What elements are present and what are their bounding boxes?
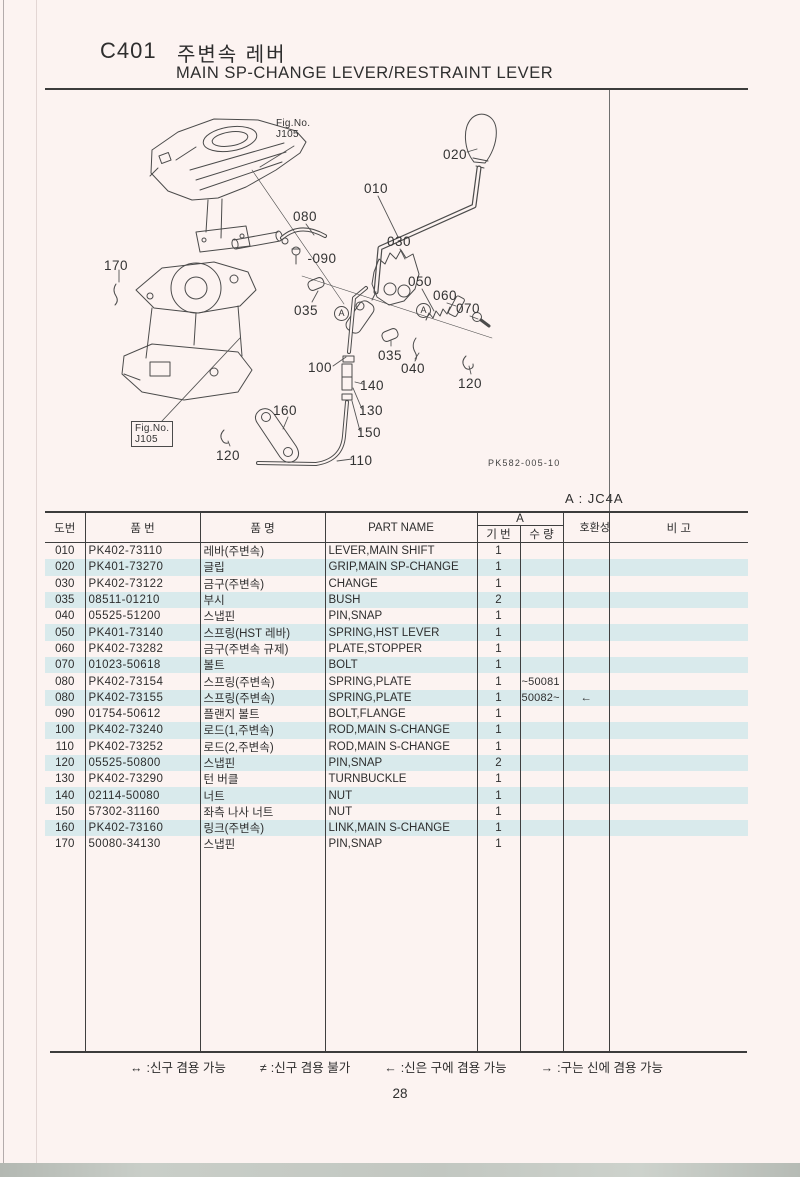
filler-cell: [609, 853, 748, 1051]
cell-part-no: 02114-50080: [85, 787, 200, 803]
header-quantity: 수 량: [520, 526, 563, 543]
cell-name-ko: 스프링(주변속): [200, 690, 325, 706]
cell-compat: [563, 673, 609, 689]
cell-no: 170: [45, 836, 85, 852]
cell-qty: 1: [477, 576, 520, 592]
cell-part-no: PK402-73290: [85, 771, 200, 787]
cell-part-name: PIN,SNAP: [325, 608, 477, 624]
callout-050: 050: [408, 274, 432, 289]
legend-item: ↔:신구 겸용 가능: [130, 1057, 226, 1076]
cell-no: 060: [45, 641, 85, 657]
cell-compat: [563, 787, 609, 803]
cell-part-name: LEVER,MAIN SHIFT: [325, 543, 477, 560]
cell-qty: 1: [477, 673, 520, 689]
cell-name-ko: 스프링(HST 레바): [200, 624, 325, 640]
cell-qty: 1: [477, 706, 520, 722]
cell-remarks: [609, 755, 748, 771]
cell-part-name: LINK,MAIN S-CHANGE: [325, 820, 477, 836]
fig-reference-bottom: Fig.No. J105: [131, 421, 173, 447]
legend-text: :신구 겸용 가능: [146, 1061, 225, 1075]
callout-120: 120: [458, 376, 482, 391]
callout-020: 020: [443, 147, 467, 162]
filler-cell: [563, 853, 609, 1051]
cell-no: 050: [45, 624, 85, 640]
cell-compat: [563, 592, 609, 608]
legend-symbol: ←: [384, 1061, 397, 1075]
table-filler-row: [45, 853, 748, 1051]
page-number: 28: [0, 1086, 800, 1101]
cell-no: 010: [45, 543, 85, 560]
header-name-korean: 품 명: [200, 512, 325, 543]
cell-part-name: BOLT,FLANGE: [325, 706, 477, 722]
cell-part-no: PK402-73155: [85, 690, 200, 706]
cell-serial: [520, 559, 563, 575]
cell-qty: 1: [477, 787, 520, 803]
cell-compat: [563, 641, 609, 657]
header-serial-no: 기 번: [477, 526, 520, 543]
cell-name-ko: 스냅핀: [200, 755, 325, 771]
cell-no: 030: [45, 576, 85, 592]
cell-part-no: PK402-73252: [85, 739, 200, 755]
table-row: 060PK402-73282금구(주변속 규제)PLATE,STOPPER1: [45, 641, 748, 657]
cell-no: 080: [45, 673, 85, 689]
cell-name-ko: 금구(주변속): [200, 576, 325, 592]
fig-ref-bottom-line1: Fig.No.: [135, 423, 169, 434]
cell-no: 150: [45, 804, 85, 820]
cell-compat: [563, 836, 609, 852]
cell-part-name: GRIP,MAIN SP-CHANGE: [325, 559, 477, 575]
table-row: 160PK402-73160링크(주변속)LINK,MAIN S-CHANGE1: [45, 820, 748, 836]
callout-110: 110: [349, 453, 372, 468]
cell-part-no: 08511-01210: [85, 592, 200, 608]
cell-compat: [563, 608, 609, 624]
cell-no: 100: [45, 722, 85, 738]
cell-qty: 2: [477, 755, 520, 771]
callout-100: 100: [308, 360, 332, 375]
cell-compat: [563, 739, 609, 755]
cell-qty: 2: [477, 592, 520, 608]
drawing-code: PK582-005-10: [488, 458, 560, 468]
page-title-korean: 주변속 레버: [177, 38, 287, 67]
cell-no: 160: [45, 820, 85, 836]
filler-cell: [477, 853, 520, 1051]
table-row: 03508511-01210부시BUSH2: [45, 592, 748, 608]
callout-010: 010: [364, 181, 388, 196]
cell-remarks: [609, 820, 748, 836]
cell-serial: [520, 624, 563, 640]
cell-serial: [520, 771, 563, 787]
cell-serial: [520, 576, 563, 592]
cell-serial: [520, 706, 563, 722]
cell-part-name: BUSH: [325, 592, 477, 608]
cell-name-ko: 로드(1,주변속): [200, 722, 325, 738]
cell-remarks: [609, 543, 748, 560]
cell-remarks: [609, 641, 748, 657]
table-row: 04005525-51200스냅핀PIN,SNAP1: [45, 608, 748, 624]
header-group-a: A: [477, 512, 563, 526]
cell-no: 090: [45, 706, 85, 722]
cell-part-no: 05525-51200: [85, 608, 200, 624]
cell-serial: [520, 592, 563, 608]
cell-no: 130: [45, 771, 85, 787]
cell-qty: 1: [477, 722, 520, 738]
cell-part-name: NUT: [325, 804, 477, 820]
cell-serial: [520, 657, 563, 673]
legend-symbol: ≠: [260, 1061, 267, 1075]
cell-part-name: SPRING,PLATE: [325, 690, 477, 706]
legend-text: :신은 구에 겸용 가능: [401, 1061, 507, 1075]
header-remarks: 비 고: [609, 512, 748, 543]
cell-qty: 1: [477, 820, 520, 836]
cell-qty: 1: [477, 624, 520, 640]
table-row: 030PK402-73122금구(주변속)CHANGE1: [45, 576, 748, 592]
cell-qty: 1: [477, 739, 520, 755]
cell-remarks: [609, 706, 748, 722]
table-bottom-rule: [50, 1051, 747, 1053]
cell-serial: [520, 722, 563, 738]
callout-080: 080: [293, 209, 317, 224]
cell-remarks: [609, 739, 748, 755]
filler-cell: [85, 853, 200, 1051]
cell-qty: 1: [477, 657, 520, 673]
model-note: A : JC4A: [565, 491, 624, 506]
cell-compat: ←: [563, 690, 609, 706]
cell-serial: [520, 608, 563, 624]
cell-part-no: PK402-73122: [85, 576, 200, 592]
cell-qty: 1: [477, 690, 520, 706]
cell-part-no: PK402-73154: [85, 673, 200, 689]
cell-remarks: [609, 836, 748, 852]
cell-part-no: PK402-73160: [85, 820, 200, 836]
cell-remarks: [609, 559, 748, 575]
cell-remarks: [609, 673, 748, 689]
page-title-english: MAIN SP-CHANGE LEVER/RESTRAINT LEVER: [176, 64, 553, 83]
cell-remarks: [609, 608, 748, 624]
scan-edge-line-inner: [36, 0, 37, 1164]
cell-part-no: 05525-50800: [85, 755, 200, 771]
cell-part-name: PIN,SNAP: [325, 755, 477, 771]
callout-170: 170: [104, 258, 128, 273]
table-row: 130PK402-73290턴 버클TURNBUCKLE1: [45, 771, 748, 787]
cell-part-name: NUT: [325, 787, 477, 803]
callout-150: 150: [357, 425, 381, 440]
cell-compat: [563, 657, 609, 673]
fig-ref-top-line1: Fig.No.: [276, 118, 310, 129]
header-part-name: PART NAME: [325, 512, 477, 543]
legend-text: :신구 겸용 불가: [271, 1061, 350, 1075]
table-row: 020PK401-73270글립GRIP,MAIN SP-CHANGE1: [45, 559, 748, 575]
cell-remarks: [609, 787, 748, 803]
fig-ref-bottom-line2: J105: [135, 434, 169, 445]
cell-name-ko: 스냅핀: [200, 608, 325, 624]
cell-name-ko: 링크(주변속): [200, 820, 325, 836]
cell-part-no: PK402-73110: [85, 543, 200, 560]
cell-no: 120: [45, 755, 85, 771]
callout-160: 160: [273, 403, 297, 418]
cell-name-ko: 좌측 나사 너트: [200, 804, 325, 820]
cell-qty: 1: [477, 771, 520, 787]
callout-040: 040: [401, 361, 425, 376]
cell-name-ko: 금구(주변속 규제): [200, 641, 325, 657]
cell-no: 070: [45, 657, 85, 673]
cell-serial: [520, 787, 563, 803]
cell-name-ko: 부시: [200, 592, 325, 608]
cell-compat: [563, 706, 609, 722]
cell-qty: 1: [477, 641, 520, 657]
section-code: C401: [100, 38, 157, 64]
cell-no: 020: [45, 559, 85, 575]
cell-remarks: [609, 624, 748, 640]
cell-part-name: SPRING,HST LEVER: [325, 624, 477, 640]
table-row: 100PK402-73240로드(1,주변속)ROD,MAIN S-CHANGE…: [45, 722, 748, 738]
cell-qty: 1: [477, 559, 520, 575]
header-fig-no: 도번: [45, 512, 85, 543]
cell-qty: 1: [477, 543, 520, 560]
cell-name-ko: 볼트: [200, 657, 325, 673]
cell-part-no: 50080-34130: [85, 836, 200, 852]
cell-serial: [520, 739, 563, 755]
cell-name-ko: 플랜지 볼트: [200, 706, 325, 722]
cell-serial: [520, 641, 563, 657]
cell-remarks: [609, 592, 748, 608]
table-row: 17050080-34130스냅핀PIN,SNAP1: [45, 836, 748, 852]
cell-part-no: PK402-73240: [85, 722, 200, 738]
cell-compat: [563, 771, 609, 787]
callout-035: 035: [378, 348, 402, 363]
cell-no: 035: [45, 592, 85, 608]
callout-035: 035: [294, 303, 318, 318]
callout-060: 060: [433, 288, 457, 303]
legend-item: →:구는 신에 겸용 가능: [541, 1057, 663, 1076]
cell-part-name: ROD,MAIN S-CHANGE: [325, 739, 477, 755]
legend-text: :구는 신에 겸용 가능: [557, 1061, 663, 1075]
fig-reference-top: Fig.No. J105: [276, 118, 310, 140]
cell-compat: [563, 755, 609, 771]
cell-remarks: [609, 576, 748, 592]
table-row: 080PK402-73154스프링(주변속)SPRING,PLATE1~5008…: [45, 673, 748, 689]
detail-marker-a: A: [334, 306, 349, 321]
title-rule: [45, 88, 748, 90]
header-part-no: 품 번: [85, 512, 200, 543]
cell-compat: [563, 820, 609, 836]
cell-part-no: PK401-73270: [85, 559, 200, 575]
cell-compat: [563, 722, 609, 738]
cell-part-name: BOLT: [325, 657, 477, 673]
cell-part-no: 01754-50612: [85, 706, 200, 722]
filler-cell: [325, 853, 477, 1051]
cell-serial: [520, 836, 563, 852]
header-compatibility: 호환성: [563, 512, 609, 543]
table-row: 110PK402-73252로드(2,주변속)ROD,MAIN S-CHANGE…: [45, 739, 748, 755]
cell-remarks: [609, 722, 748, 738]
cell-part-name: PIN,SNAP: [325, 836, 477, 852]
cell-qty: 1: [477, 836, 520, 852]
detail-marker-a: A: [416, 303, 431, 318]
cell-no: 040: [45, 608, 85, 624]
cell-remarks: [609, 657, 748, 673]
cell-qty: 1: [477, 608, 520, 624]
table-row: 15057302-31160좌측 나사 너트NUT1: [45, 804, 748, 820]
callout-140: 140: [360, 378, 384, 393]
cell-compat: [563, 543, 609, 560]
cell-part-no: PK402-73282: [85, 641, 200, 657]
cell-no: 080: [45, 690, 85, 706]
legend: ↔:신구 겸용 가능≠:신구 겸용 불가←:신은 구에 겸용 가능→:구는 신에…: [45, 1057, 748, 1076]
cell-part-name: TURNBUCKLE: [325, 771, 477, 787]
cell-compat: [563, 804, 609, 820]
cell-name-ko: 턴 버클: [200, 771, 325, 787]
cell-remarks: [609, 804, 748, 820]
header-compatibility-text: 호환성: [580, 522, 593, 534]
scan-edge-line-outer: [3, 0, 4, 1164]
cell-name-ko: 레바(주변속): [200, 543, 325, 560]
cell-remarks: [609, 690, 748, 706]
filler-cell: [520, 853, 563, 1051]
cell-serial: [520, 804, 563, 820]
table-row: 07001023-50618볼트BOLT1: [45, 657, 748, 673]
cell-compat: [563, 624, 609, 640]
callout-130: 130: [359, 403, 383, 418]
legend-symbol: ↔: [130, 1061, 143, 1075]
cell-name-ko: 스냅핀: [200, 836, 325, 852]
cell-serial: [520, 755, 563, 771]
callout-030: 030: [387, 234, 411, 249]
table-row: 080PK402-73155스프링(주변속)SPRING,PLATE150082…: [45, 690, 748, 706]
legend-item: ≠:신구 겸용 불가: [260, 1057, 350, 1076]
cell-part-name: ROD,MAIN S-CHANGE: [325, 722, 477, 738]
scan-bottom-band: [0, 1163, 800, 1177]
cell-compat: [563, 559, 609, 575]
cell-no: 110: [45, 739, 85, 755]
cell-serial: ~50081: [520, 673, 563, 689]
cell-name-ko: 글립: [200, 559, 325, 575]
cell-part-name: CHANGE: [325, 576, 477, 592]
cell-serial: [520, 543, 563, 560]
callout-070: 070: [456, 301, 480, 316]
cell-part-no: 01023-50618: [85, 657, 200, 673]
legend-symbol: →: [541, 1061, 554, 1075]
table-row: 010PK402-73110레바(주변속)LEVER,MAIN SHIFT1: [45, 543, 748, 560]
cell-part-name: SPRING,PLATE: [325, 673, 477, 689]
cell-name-ko: 스프링(주변속): [200, 673, 325, 689]
table-row: 050PK401-73140스프링(HST 레바)SPRING,HST LEVE…: [45, 624, 748, 640]
callout-120: 120: [216, 448, 240, 463]
cell-name-ko: 로드(2,주변속): [200, 739, 325, 755]
table-row: 12005525-50800스냅핀PIN,SNAP2: [45, 755, 748, 771]
table-row: 14002114-50080너트NUT1: [45, 787, 748, 803]
cell-serial: 50082~: [520, 690, 563, 706]
cell-no: 140: [45, 787, 85, 803]
cell-remarks: [609, 771, 748, 787]
filler-cell: [200, 853, 325, 1051]
cell-part-no: PK401-73140: [85, 624, 200, 640]
table-row: 09001754-50612플랜지 볼트BOLT,FLANGE1: [45, 706, 748, 722]
cell-part-name: PLATE,STOPPER: [325, 641, 477, 657]
column-divider-line: [609, 90, 610, 511]
cell-qty: 1: [477, 804, 520, 820]
parts-table: 도번 품 번 품 명 PART NAME A 호환성 비 고 기 번 수 량 0…: [45, 511, 748, 1051]
legend-item: ←:신은 구에 겸용 가능: [384, 1057, 506, 1076]
cell-name-ko: 너트: [200, 787, 325, 803]
callout-090: -090: [307, 251, 336, 266]
cell-serial: [520, 820, 563, 836]
parts-catalog-page: { "page": { "code": "C401", "title_ko": …: [0, 0, 800, 1177]
filler-cell: [45, 853, 85, 1051]
cell-compat: [563, 576, 609, 592]
fig-ref-top-line2: J105: [276, 129, 310, 140]
cell-part-no: 57302-31160: [85, 804, 200, 820]
